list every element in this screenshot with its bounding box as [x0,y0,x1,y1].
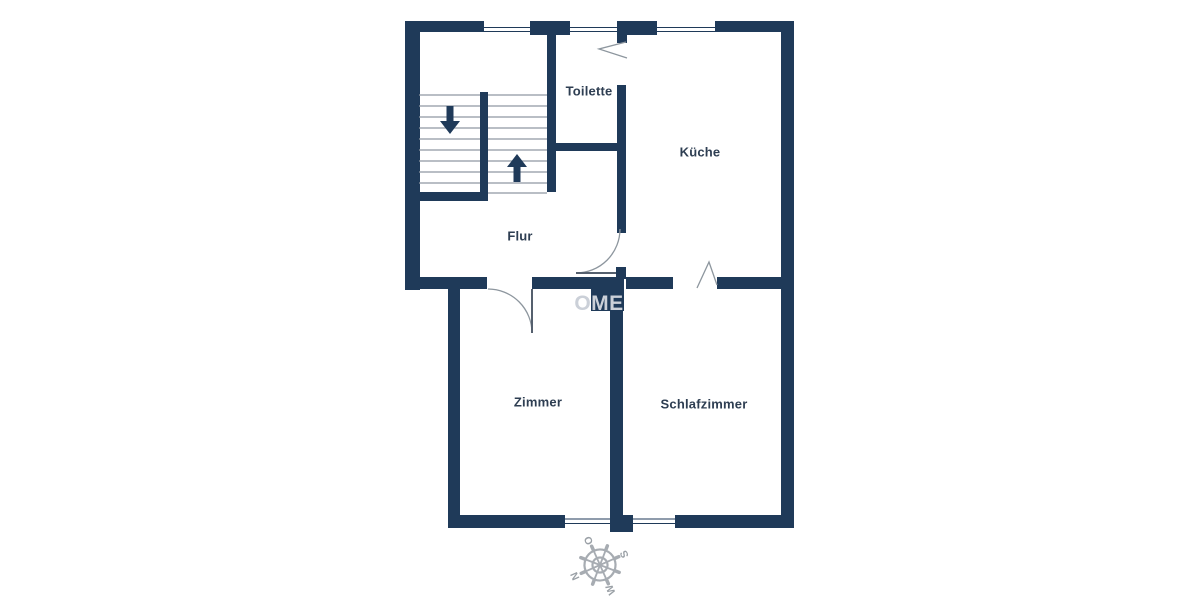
compass-letter-west: W [603,583,618,597]
windows [484,28,715,524]
wall-stair-bottom [413,192,488,201]
room-label-flur: Flur [507,229,532,244]
wall-mid-d [717,277,782,289]
wall-left-upper [405,21,420,290]
compass-spokes [580,545,620,585]
wall-mid-c [626,277,673,289]
wall-left-lower [448,277,460,528]
wall-room-divider [610,311,623,515]
door-flur-kueche [576,229,620,273]
wall-bottom-pier [610,515,633,532]
wall-mid-a [405,277,487,289]
compass-rose: N O S W [557,523,643,600]
wall-stair-right [547,31,556,192]
watermark-text: OME [574,292,623,316]
wall-top-pier-2 [617,21,657,35]
door-zimmer [488,289,532,333]
room-label-schlafzimmer: Schlafzimmer [661,397,748,412]
stair-arrow-up-icon [507,154,527,182]
floor-plan: N O S W Toilette Küche Flur Zimmer Schla… [0,0,1200,600]
window-top-2 [570,28,617,32]
wall-mid-b [532,277,593,289]
wall-bottom-b [675,515,793,528]
wall-stair-stringer [480,92,488,201]
window-top-3 [657,28,715,32]
compass-letter-south: S [618,548,632,559]
window-bottom-1 [565,519,610,524]
wall-bottom-a [448,515,565,528]
window-top-1 [484,28,530,32]
door-schlafzimmer [697,262,717,288]
compass-letter-east: O [582,534,596,546]
wall-toilette-bottom [547,143,626,151]
window-bottom-2 [633,519,675,524]
wall-kueche-left [617,85,626,233]
room-label-zimmer: Zimmer [514,395,562,410]
compass-letter-north: N [568,570,582,582]
stair-arrow-down-icon [440,106,460,134]
room-label-kueche: Küche [680,145,721,160]
wall-right [781,21,794,528]
door-toilette-opening [599,42,627,58]
room-label-toilette: Toilette [566,84,613,99]
